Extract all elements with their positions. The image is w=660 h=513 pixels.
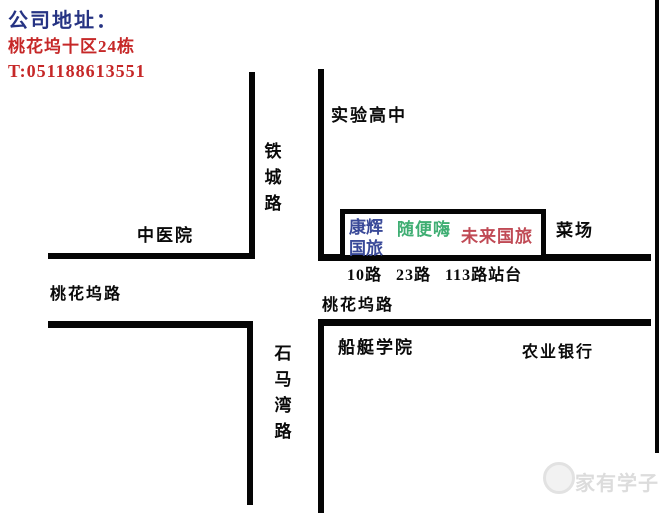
- company-address-value: 桃花坞十区24栋: [8, 37, 135, 57]
- label-bus-stop: 10路 23路 113路站台: [347, 267, 522, 285]
- road-taohuawu-left-lower: [48, 321, 253, 328]
- road-shima-right-edge: [318, 325, 324, 513]
- road-tiecheng-left-edge: [249, 72, 255, 258]
- label-boat-college: 船艇学院: [338, 338, 414, 358]
- map-canvas: 公司地址： 桃花坞十区24栋 T:051188613551 康辉 国旅 随便嗨 …: [0, 0, 660, 513]
- label-market: 菜场: [556, 221, 594, 241]
- label-tiecheng-road: 铁城路: [261, 142, 281, 220]
- shop-kanghui-guolv: 康辉 国旅: [349, 217, 383, 259]
- shop-kanghui-line1: 康辉: [349, 217, 383, 238]
- watermark-text: 家有学子: [575, 467, 659, 496]
- road-taohuawu-right-lower: [318, 319, 651, 326]
- road-right-border: [655, 0, 659, 453]
- label-taohuawu-road-right: 桃花坞路: [322, 297, 394, 315]
- company-phone: T:051188613551: [8, 61, 146, 82]
- label-shimawan-road: 石马湾路: [271, 344, 291, 448]
- road-shima-left-edge: [247, 321, 253, 505]
- shop-suibianhai: 随便嗨: [397, 215, 451, 240]
- road-tiecheng-right-edge: [318, 69, 324, 260]
- road-taohuawu-left-upper: [48, 253, 255, 259]
- label-chinese-medicine-hospital: 中医院: [137, 226, 194, 246]
- company-address-label: 公司地址：: [8, 10, 118, 33]
- shop-weilai-guolv: 未来国旅: [461, 222, 533, 247]
- shop-kanghui-line2: 国旅: [349, 238, 383, 259]
- watermark-logo-icon: [543, 462, 575, 494]
- label-taohuawu-road-left: 桃花坞路: [50, 286, 122, 304]
- label-experimental-high-school: 实验高中: [331, 106, 407, 126]
- label-agricultural-bank: 农业银行: [522, 344, 594, 362]
